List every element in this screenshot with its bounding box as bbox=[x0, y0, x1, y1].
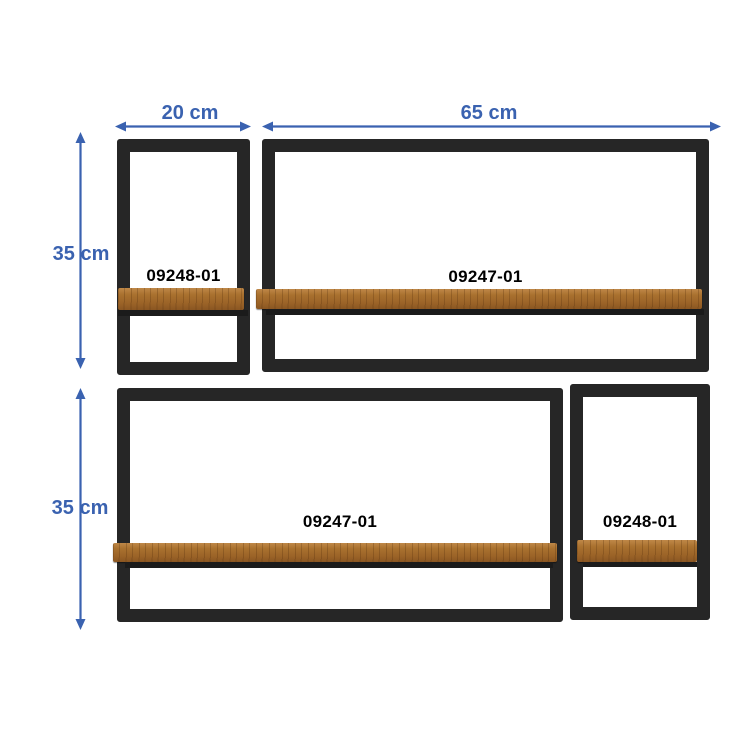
wood-plank bbox=[113, 543, 557, 562]
frame-texture bbox=[262, 139, 709, 372]
shelf-frame-bottom-small: 09248-01 bbox=[570, 384, 710, 620]
frame-texture bbox=[117, 388, 563, 622]
shelf-set-dimension-diagram: 20 cm 65 cm 35 cm 35 cm 09248-01 09247-0… bbox=[0, 0, 733, 733]
wood-plank bbox=[256, 289, 702, 309]
frame-texture bbox=[570, 384, 710, 620]
plank-support-bar bbox=[583, 562, 697, 567]
sku-label: 09248-01 bbox=[583, 512, 697, 532]
dimension-label-35cm-bottom: 35 cm bbox=[52, 496, 109, 520]
plank-support-bar bbox=[266, 309, 704, 315]
wood-plank bbox=[118, 288, 244, 310]
shelf-frame-bottom-large: 09247-01 bbox=[117, 388, 563, 622]
sku-label: 09247-01 bbox=[130, 512, 550, 532]
frame-texture bbox=[117, 139, 250, 375]
shelf-frame-top-small: 09248-01 bbox=[117, 139, 250, 375]
dimension-label-65cm: 65 cm bbox=[461, 101, 518, 125]
wood-plank bbox=[577, 540, 697, 562]
shelf-frame-top-large: 09247-01 bbox=[262, 139, 709, 372]
sku-label: 09248-01 bbox=[130, 266, 237, 286]
dimension-label-35cm-top: 35 cm bbox=[53, 242, 110, 266]
plank-support-bar bbox=[125, 562, 553, 568]
dimension-label-20cm: 20 cm bbox=[162, 101, 219, 125]
sku-label: 09247-01 bbox=[275, 267, 696, 287]
plank-support-bar bbox=[118, 310, 248, 316]
